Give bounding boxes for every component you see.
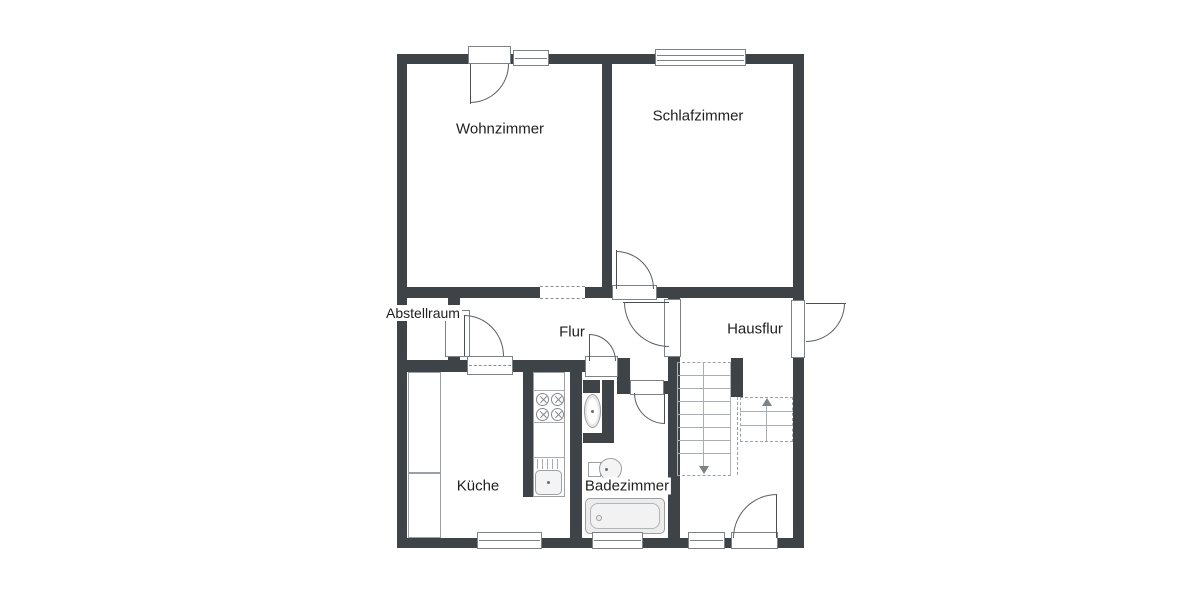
entrance-door-swing bbox=[733, 494, 777, 538]
wall-exterior-left bbox=[397, 54, 407, 548]
counter-divider bbox=[533, 390, 565, 391]
bedroom-door-swing bbox=[616, 251, 654, 289]
stair-tread bbox=[677, 453, 731, 454]
kitchen-pass-through bbox=[467, 356, 513, 375]
counter-divider bbox=[533, 457, 565, 458]
stove-burner bbox=[536, 408, 549, 421]
stair-tread bbox=[677, 427, 731, 428]
room-label-flur: Flur bbox=[557, 324, 587, 341]
window-glass-line bbox=[479, 540, 540, 541]
side-entrance-door-swing bbox=[806, 303, 845, 342]
bath-door-swing bbox=[634, 393, 665, 424]
wc-door-swing bbox=[589, 334, 616, 361]
stair-walkline-up bbox=[766, 405, 767, 442]
stair-tread bbox=[677, 414, 731, 415]
stair-tread bbox=[677, 401, 731, 402]
bathtub-drain bbox=[596, 515, 602, 521]
room-label-badezimmer: Badezimmer bbox=[583, 478, 671, 495]
window-glass-line bbox=[515, 58, 547, 59]
stair-arrow-up bbox=[762, 398, 772, 406]
washbasin-drain bbox=[605, 468, 608, 471]
room-label-kueche: Küche bbox=[455, 478, 502, 495]
bathroom-window bbox=[592, 532, 643, 549]
wall-stair-stub bbox=[731, 358, 743, 397]
wall-living-bedroom bbox=[602, 54, 612, 297]
bathtub bbox=[585, 498, 665, 534]
stair-arrow-down bbox=[699, 466, 709, 474]
room-label-hausflur: Hausflur bbox=[725, 321, 785, 338]
stair-walkline-down bbox=[703, 362, 704, 466]
kitchen-window bbox=[477, 532, 542, 549]
drainboard-line bbox=[552, 459, 553, 469]
stair-flight-down bbox=[677, 362, 731, 476]
side-entrance-door-frame bbox=[791, 300, 805, 358]
living-hall-opening bbox=[540, 286, 585, 299]
stove-burner bbox=[551, 393, 564, 406]
hausflur-window bbox=[688, 532, 725, 549]
window-glass-line bbox=[690, 540, 723, 541]
hall-hausflur-door-swing bbox=[624, 302, 669, 347]
living-room-door-swing bbox=[470, 64, 509, 103]
room-label-schlafzimmer: Schlafzimmer bbox=[651, 108, 746, 125]
living-room-door-frame bbox=[468, 46, 511, 64]
living-room-window bbox=[513, 50, 549, 66]
cupboard bbox=[408, 473, 441, 538]
window-glass-line bbox=[594, 540, 641, 541]
cupboard bbox=[408, 372, 441, 473]
stair-tread bbox=[677, 388, 731, 389]
stair-tread bbox=[677, 375, 731, 376]
window-glass-line bbox=[657, 60, 744, 61]
toilet-cistern bbox=[583, 380, 600, 393]
bedroom-window bbox=[655, 49, 746, 66]
sink-drain bbox=[547, 481, 550, 484]
wall-kitchen-bath bbox=[570, 360, 582, 548]
floorplan: Wohnzimmer Schlafzimmer Abstellraum Flur… bbox=[397, 54, 804, 548]
room-label-wohnzimmer: Wohnzimmer bbox=[454, 121, 546, 138]
window-glass-line bbox=[657, 55, 744, 56]
pass-through-line bbox=[469, 365, 511, 366]
room-label-abstellraum: Abstellraum bbox=[384, 305, 462, 321]
drainboard-line bbox=[557, 459, 558, 469]
stove-burner bbox=[536, 393, 549, 406]
counter-divider bbox=[533, 422, 565, 423]
drainboard-line bbox=[542, 459, 543, 469]
stair-break-line bbox=[737, 397, 738, 475]
stove-burner bbox=[551, 408, 564, 421]
toilet-drain bbox=[591, 410, 594, 413]
wall-kitchen-divider bbox=[523, 360, 533, 497]
drainboard-line bbox=[537, 459, 538, 469]
storage-door-swing bbox=[464, 315, 504, 356]
stair-tread bbox=[677, 440, 731, 441]
floorplan-canvas: Wohnzimmer Schlafzimmer Abstellraum Flur… bbox=[0, 0, 1200, 600]
wall-wc-south bbox=[583, 433, 611, 443]
drainboard-line bbox=[547, 459, 548, 469]
